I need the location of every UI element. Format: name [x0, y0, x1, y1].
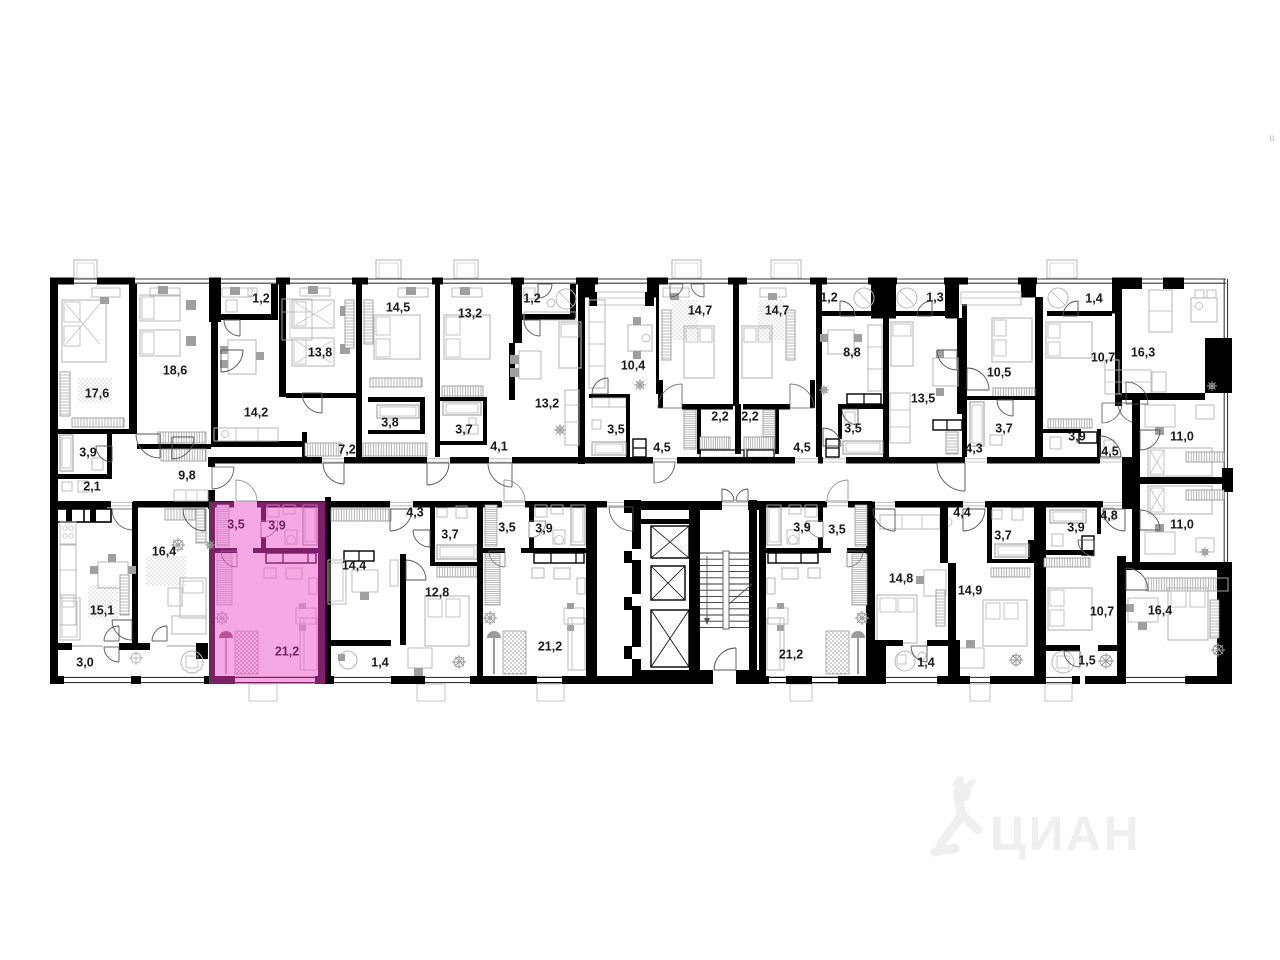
svg-text:ЦИАН: ЦИАН — [991, 808, 1142, 861]
svg-text:10,5: 10,5 — [987, 365, 1011, 379]
svg-text:3,5: 3,5 — [607, 422, 624, 436]
svg-text:3,5: 3,5 — [844, 421, 861, 435]
svg-text:3,8: 3,8 — [381, 415, 398, 429]
svg-text:1,4: 1,4 — [371, 655, 388, 669]
svg-text:21,2: 21,2 — [779, 647, 803, 661]
svg-text:8,8: 8,8 — [843, 345, 860, 359]
svg-text:14,7: 14,7 — [765, 303, 789, 317]
svg-text:3,9: 3,9 — [535, 521, 552, 535]
svg-text:21,2: 21,2 — [275, 644, 299, 658]
svg-text:4,5: 4,5 — [1101, 444, 1118, 458]
svg-text:3,9: 3,9 — [79, 445, 96, 459]
svg-text:15,1: 15,1 — [90, 603, 114, 617]
svg-text:4,5: 4,5 — [793, 440, 810, 454]
svg-text:14,5: 14,5 — [386, 300, 410, 314]
svg-text:13,5: 13,5 — [911, 391, 935, 405]
svg-text:3,9: 3,9 — [793, 520, 810, 534]
svg-text:2,1: 2,1 — [83, 479, 100, 493]
svg-text:3,7: 3,7 — [455, 422, 472, 436]
svg-text:14,8: 14,8 — [889, 571, 913, 585]
svg-text:21,2: 21,2 — [538, 639, 562, 653]
svg-text:9,8: 9,8 — [178, 468, 195, 482]
svg-text:3,9: 3,9 — [268, 518, 285, 532]
svg-text:14,7: 14,7 — [688, 303, 712, 317]
svg-text:11,0: 11,0 — [1170, 429, 1194, 443]
svg-text:18,6: 18,6 — [163, 363, 187, 377]
svg-text:4,3: 4,3 — [406, 505, 423, 519]
svg-text:4,3: 4,3 — [965, 441, 982, 455]
svg-text:13,2: 13,2 — [535, 396, 559, 410]
svg-text:3,7: 3,7 — [994, 528, 1011, 542]
svg-text:13,8: 13,8 — [308, 345, 332, 359]
svg-text:14,9: 14,9 — [958, 583, 982, 597]
svg-text:10,4: 10,4 — [621, 358, 645, 372]
svg-text:1,4: 1,4 — [1085, 291, 1102, 305]
svg-text:3,7: 3,7 — [995, 421, 1012, 435]
svg-text:16,4: 16,4 — [1148, 603, 1172, 617]
svg-text:7,2: 7,2 — [338, 442, 355, 456]
svg-text:3,7: 3,7 — [441, 527, 458, 541]
svg-text:1,5: 1,5 — [1078, 653, 1095, 667]
svg-text:1,2: 1,2 — [820, 290, 837, 304]
svg-text:16,4: 16,4 — [152, 544, 176, 558]
svg-text:14,4: 14,4 — [342, 558, 366, 572]
svg-text:10,7: 10,7 — [1091, 350, 1115, 364]
svg-text:2,2: 2,2 — [741, 409, 758, 423]
svg-text:в: в — [1269, 133, 1274, 144]
svg-text:10,7: 10,7 — [1090, 604, 1114, 618]
svg-text:3,9: 3,9 — [1068, 429, 1085, 443]
svg-text:11,0: 11,0 — [1170, 517, 1194, 531]
svg-text:3,0: 3,0 — [76, 655, 93, 669]
svg-text:4,8: 4,8 — [1100, 508, 1117, 522]
svg-text:1,4: 1,4 — [917, 655, 934, 669]
svg-text:2,2: 2,2 — [711, 409, 728, 423]
svg-text:1,2: 1,2 — [523, 291, 540, 305]
svg-text:3,5: 3,5 — [498, 520, 515, 534]
svg-text:14,2: 14,2 — [244, 405, 268, 419]
svg-text:3,5: 3,5 — [227, 517, 244, 531]
svg-text:1,3: 1,3 — [926, 290, 943, 304]
svg-text:4,4: 4,4 — [953, 505, 970, 519]
svg-text:16,3: 16,3 — [1131, 345, 1155, 359]
svg-text:4,5: 4,5 — [653, 440, 670, 454]
svg-text:13,2: 13,2 — [458, 306, 482, 320]
svg-text:3,5: 3,5 — [828, 522, 845, 536]
svg-text:4,1: 4,1 — [490, 439, 507, 453]
svg-text:3,9: 3,9 — [1067, 520, 1084, 534]
svg-text:17,6: 17,6 — [85, 386, 109, 400]
svg-text:1,2: 1,2 — [252, 291, 269, 305]
svg-text:12,8: 12,8 — [425, 585, 449, 599]
